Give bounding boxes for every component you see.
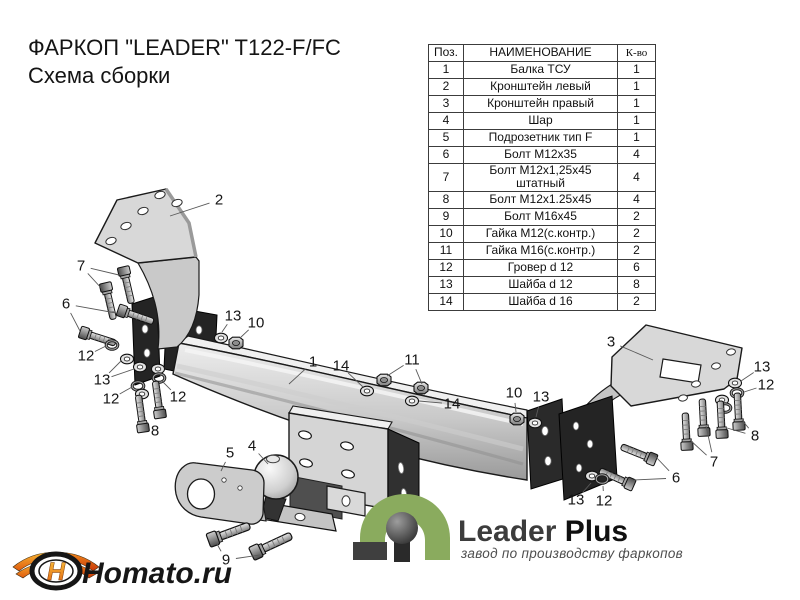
table-row: 13Шайба d 128	[429, 276, 656, 293]
callout-label: 9	[222, 552, 230, 569]
table-row: 4Шар1	[429, 113, 656, 130]
leader-line	[741, 373, 754, 382]
part-name: Гайка М12(с.контр.)	[464, 225, 618, 242]
washer-13	[121, 354, 134, 364]
table-row: 10Гайка М12(с.контр.)2	[429, 225, 656, 242]
table-row: 3Кронштейн правый1	[429, 96, 656, 113]
leader-line	[71, 313, 80, 331]
plate-hole	[142, 325, 148, 333]
callout-label: 12	[103, 391, 120, 408]
table-row: 7Болт М12х1,25х45 штатный4	[429, 164, 656, 192]
beam-right-end-plate	[527, 399, 566, 489]
leader-plus-tagline: завод по производству фаркопов	[460, 546, 683, 561]
leader-line	[744, 388, 757, 392]
callout-label: 11	[404, 352, 420, 369]
callout-label: 2	[215, 192, 223, 209]
part-qty: 8	[618, 276, 656, 293]
callout-label: 10	[506, 385, 523, 402]
plate-hole	[573, 422, 579, 430]
callout-label: 1	[309, 354, 317, 371]
callout-label: 13	[533, 389, 550, 406]
part-qty: 1	[618, 79, 656, 96]
leader-plus-name-bold: Plus	[565, 515, 628, 548]
homato-text: Homato.ru	[82, 557, 232, 590]
part-qty: 2	[618, 225, 656, 242]
leader-line	[91, 268, 119, 275]
leader-line	[634, 479, 666, 481]
leader-plus-name: Leader	[458, 515, 565, 548]
plate-hole	[587, 440, 593, 448]
bolt-8	[731, 393, 745, 431]
nut-10	[510, 413, 524, 425]
homato-emblem-letter: H	[47, 558, 66, 586]
part-qty: 4	[618, 147, 656, 164]
bolt-8	[132, 394, 149, 433]
svg-text:Leader Plus: Leader Plus	[458, 515, 628, 548]
emblem-ball	[386, 512, 418, 544]
table-row: 9Болт М16х452	[429, 208, 656, 225]
plate-hole	[144, 349, 150, 357]
callout-label: 13	[225, 308, 242, 325]
parts-table: Поз. НАИМЕНОВАНИЕ К-во 1Балка ТСУ12Кронш…	[428, 44, 656, 311]
washer-13	[215, 333, 228, 343]
callout-label: 14	[444, 396, 461, 413]
leader-line	[88, 273, 103, 290]
part-name: Балка ТСУ	[464, 62, 618, 79]
leader-plus-logo: Leader Plus завод по производству фаркоп…	[353, 494, 683, 562]
nut-11	[414, 382, 428, 394]
plate-hole	[576, 464, 582, 472]
part-pos: 4	[429, 113, 464, 130]
socket-hole	[188, 479, 215, 509]
part-name: Болт М12х1,25х45 штатный	[464, 164, 618, 192]
plate-hole	[545, 456, 551, 465]
leader-line	[217, 544, 221, 551]
parts-table-body: 1Балка ТСУ12Кронштейн левый13Кронштейн п…	[429, 62, 656, 311]
leader-line	[120, 387, 132, 394]
bolt-9	[206, 519, 252, 547]
callout-label: 8	[151, 423, 159, 440]
part-pos: 8	[429, 191, 464, 208]
part-pos: 3	[429, 96, 464, 113]
washer-13	[529, 418, 542, 428]
washer-14	[406, 396, 419, 406]
part-pos: 11	[429, 242, 464, 259]
table-row: 1Балка ТСУ1	[429, 62, 656, 79]
part-qty: 2	[618, 208, 656, 225]
part-qty: 6	[618, 259, 656, 276]
assembly-sheet: ФАРКОП "LEADER" T122-F/FCСхема сборки	[0, 0, 800, 600]
washer-13	[134, 362, 147, 372]
ball-top-hole	[267, 455, 280, 463]
leader-line	[112, 369, 135, 377]
socket-plate-part	[175, 463, 266, 524]
callout-label: 10	[248, 315, 265, 332]
leader-line	[95, 346, 106, 352]
emblem-base-bar	[353, 542, 387, 560]
bolt-7	[679, 413, 693, 451]
callout-label: 6	[62, 296, 70, 313]
plate-hole	[196, 326, 202, 334]
part-pos: 7	[429, 164, 464, 192]
callout-label: 7	[710, 454, 718, 471]
assembly-diagram: Leader Plus завод по производству фаркоп…	[0, 0, 800, 600]
plate-hole	[542, 426, 548, 435]
callout-label: 5	[226, 445, 234, 462]
nut-11	[377, 374, 391, 386]
part-qty: 1	[618, 130, 656, 147]
table-row: 2Кронштейн левый1	[429, 79, 656, 96]
part-pos: 2	[429, 79, 464, 96]
part-name: Шайба d 12	[464, 276, 618, 293]
part-pos: 1	[429, 62, 464, 79]
bolt-6	[78, 326, 117, 349]
part-name: Болт М12х35	[464, 147, 618, 164]
bolt-8	[149, 380, 166, 419]
part-name: Кронштейн левый	[464, 79, 618, 96]
washer-13	[729, 378, 742, 388]
part-qty: 4	[618, 191, 656, 208]
col-header-pos: Поз.	[429, 45, 464, 62]
plate-hole	[222, 478, 226, 482]
part-pos: 5	[429, 130, 464, 147]
washer-14	[361, 386, 374, 396]
part-pos: 9	[429, 208, 464, 225]
part-pos: 10	[429, 225, 464, 242]
callout-label: 13	[94, 372, 111, 389]
bolt-6	[619, 441, 658, 466]
table-row: 12Гровер d 126	[429, 259, 656, 276]
callout-label: 7	[77, 258, 85, 275]
part-pos: 6	[429, 147, 464, 164]
part-name: Шар	[464, 113, 618, 130]
callout-label: 12	[78, 348, 95, 365]
part-name: Кронштейн правый	[464, 96, 618, 113]
part-qty: 1	[618, 96, 656, 113]
table-row: 14Шайба d 162	[429, 293, 656, 310]
plate-hole	[238, 486, 242, 490]
callout-label: 4	[248, 438, 256, 455]
callout-label: 13	[754, 359, 771, 376]
nut-10	[229, 337, 243, 349]
part-name: Гайка М16(с.контр.)	[464, 242, 618, 259]
right-bracket-dark-arm	[559, 396, 617, 500]
col-header-name: НАИМЕНОВАНИЕ	[464, 45, 618, 62]
table-row: 5Подрозетник тип F1	[429, 130, 656, 147]
homato-logo: H Homato.ru	[13, 552, 232, 590]
part-pos: 14	[429, 293, 464, 310]
part-qty: 1	[618, 113, 656, 130]
table-row: 6Болт М12х354	[429, 147, 656, 164]
plate-hole	[342, 496, 350, 506]
part-name: Гровер d 12	[464, 259, 618, 276]
part-name: Шайба d 16	[464, 293, 618, 310]
bolt-7	[117, 266, 137, 305]
part-qty: 4	[618, 164, 656, 192]
part-name: Болт М16х45	[464, 208, 618, 225]
callout-label: 3	[607, 334, 615, 351]
leader-line	[109, 361, 121, 373]
callout-label: 12	[758, 377, 775, 394]
callout-label: 13	[568, 492, 585, 509]
col-header-qty: К-во	[618, 45, 656, 62]
leader-line	[655, 456, 669, 471]
part-pos: 13	[429, 276, 464, 293]
callout-label: 12	[596, 493, 613, 510]
leader-line	[387, 365, 404, 376]
callout-label: 12	[170, 389, 187, 406]
part-qty: 1	[618, 62, 656, 79]
part-name: Подрозетник тип F	[464, 130, 618, 147]
bolt-7	[696, 399, 710, 437]
part-qty: 2	[618, 293, 656, 310]
part-name: Болт М12х1.25х45	[464, 191, 618, 208]
part-qty: 2	[618, 242, 656, 259]
parts-table-header-row: Поз. НАИМЕНОВАНИЕ К-во	[429, 45, 656, 62]
table-row: 11Гайка М16(с.контр.)2	[429, 242, 656, 259]
table-row: 8Болт М12х1.25х454	[429, 191, 656, 208]
part-pos: 12	[429, 259, 464, 276]
callout-label: 14	[333, 358, 350, 375]
leader-line	[222, 324, 227, 332]
bolt-8	[714, 401, 728, 439]
callout-label: 6	[672, 470, 680, 487]
callout-label: 8	[751, 428, 759, 445]
